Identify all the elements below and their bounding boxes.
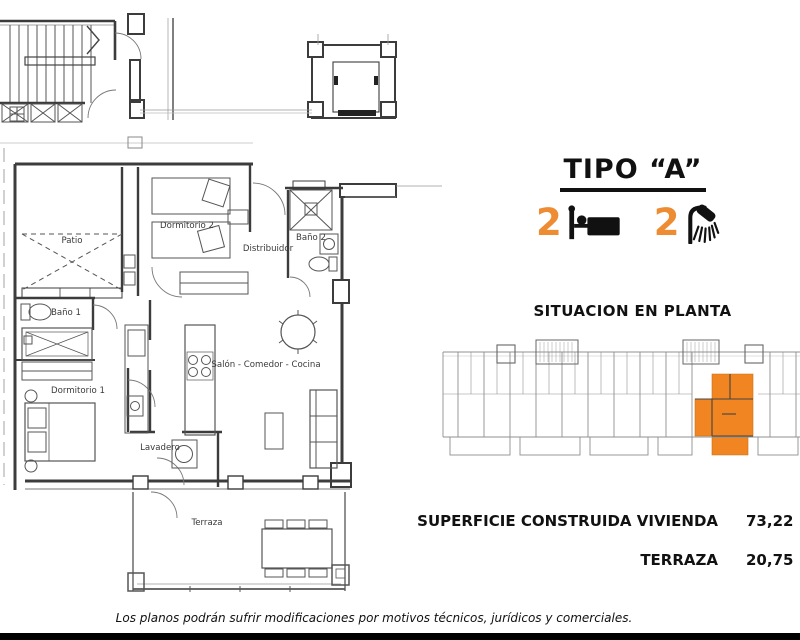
label-salon-comedor-cocina: Salón - Comedor - Cocina <box>211 359 320 370</box>
bottom-black-bar <box>0 633 800 640</box>
label-dormitorio-1: Dormitorio 1 <box>51 386 105 396</box>
terraza-value: 20,75 M <box>746 551 800 569</box>
terraza-label: TERRAZA <box>300 551 718 569</box>
vivienda-value: 73,22 M <box>746 512 800 530</box>
bathroom-count: 2 <box>654 203 680 243</box>
area-row-terraza: TERRAZA 20,75 M <box>0 551 800 571</box>
label-patio: Patio <box>61 236 82 246</box>
label-bano-2: Baño 2 <box>296 233 326 243</box>
features-row: 2 2 <box>536 200 736 246</box>
door-arcs <box>93 183 310 518</box>
bed-icon <box>566 204 624 242</box>
label-distribuidor: Distribuidor <box>243 244 294 254</box>
plan-type-title-text: TIPO “A” <box>560 154 705 192</box>
label-dormitorio-2: Dormitorio 2 <box>160 221 214 231</box>
label-lavadero: Lavadero <box>140 443 180 453</box>
situacion-en-planta-heading: SITUACION EN PLANTA <box>460 302 800 320</box>
plan-type-title: TIPO “A” <box>548 154 718 192</box>
staircase-fragment <box>0 14 173 122</box>
bedroom-count: 2 <box>536 203 562 243</box>
elevator-fragment <box>140 34 396 118</box>
disclaimer-text: Los planos podrán sufrir modificaciones … <box>0 611 748 625</box>
label-bano-1: Baño 1 <box>51 308 81 318</box>
vivienda-label: SUPERFICIE CONSTRUIDA VIVIENDA <box>300 512 718 530</box>
shower-icon <box>684 202 720 244</box>
area-row-vivienda: SUPERFICIE CONSTRUIDA VIVIENDA 73,22 M <box>0 512 800 532</box>
site-plan <box>440 336 800 466</box>
